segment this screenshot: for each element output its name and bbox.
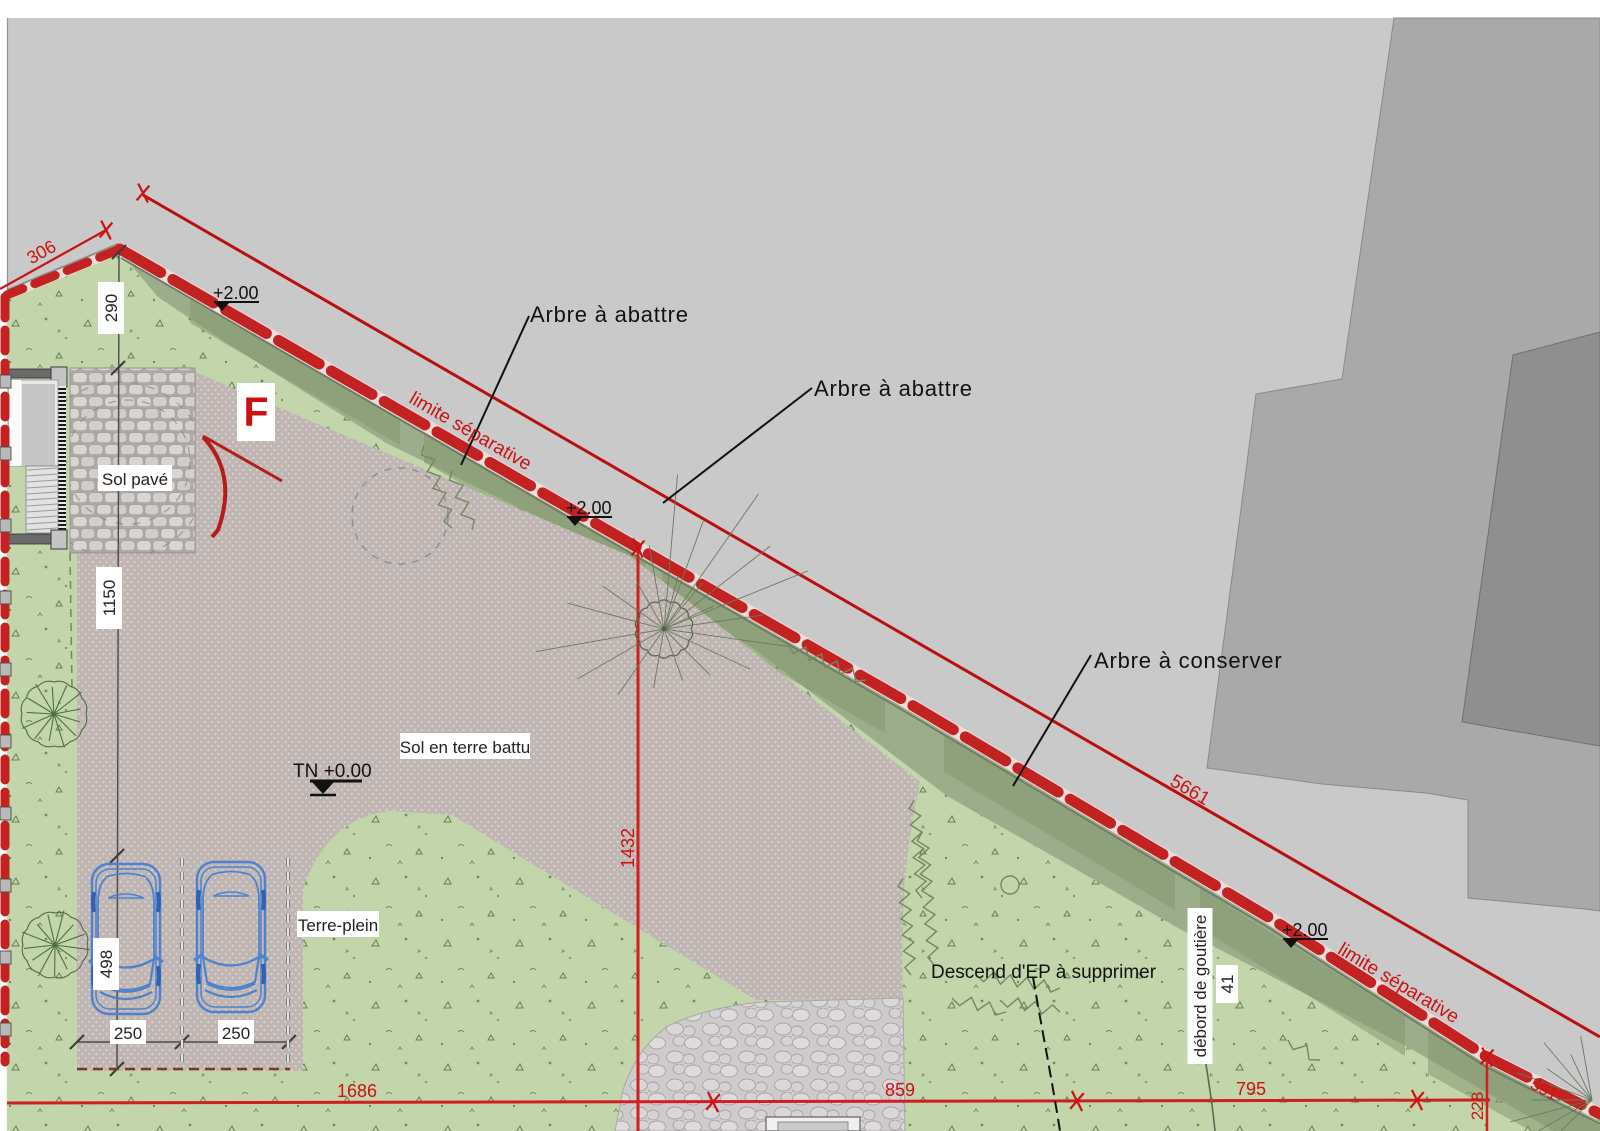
svg-text:250: 250 (222, 1024, 250, 1043)
svg-text:498: 498 (97, 950, 116, 978)
svg-text:Sol en terre battu: Sol en terre battu (400, 738, 530, 757)
svg-text:290: 290 (102, 294, 121, 322)
svg-text:1150: 1150 (100, 580, 119, 617)
svg-text:41: 41 (1218, 975, 1237, 994)
svg-text:Arbre à conserver: Arbre à conserver (1094, 648, 1282, 673)
svg-text:Sol pavé: Sol pavé (102, 470, 168, 489)
svg-text:859: 859 (885, 1080, 915, 1100)
svg-text:1686: 1686 (337, 1081, 377, 1101)
svg-text:1432: 1432 (618, 828, 638, 868)
svg-text:Terre-plein: Terre-plein (298, 916, 378, 935)
svg-text:F: F (243, 389, 268, 435)
svg-text:+2.00: +2.00 (213, 283, 259, 303)
svg-text:débord de goutière: débord de goutière (1191, 915, 1210, 1058)
svg-text:250: 250 (114, 1024, 142, 1043)
svg-text:+2.00: +2.00 (1282, 920, 1328, 940)
svg-text:TN +0.00: TN +0.00 (293, 761, 372, 782)
svg-text:Descend d'EP à supprimer: Descend d'EP à supprimer (931, 962, 1157, 983)
svg-text:Arbre à abattre: Arbre à abattre (814, 376, 973, 401)
svg-text:+2.00: +2.00 (566, 498, 612, 518)
svg-text:Arbre à abattre: Arbre à abattre (530, 302, 689, 327)
svg-text:795: 795 (1236, 1079, 1266, 1099)
svg-text:228: 228 (1468, 1092, 1487, 1120)
